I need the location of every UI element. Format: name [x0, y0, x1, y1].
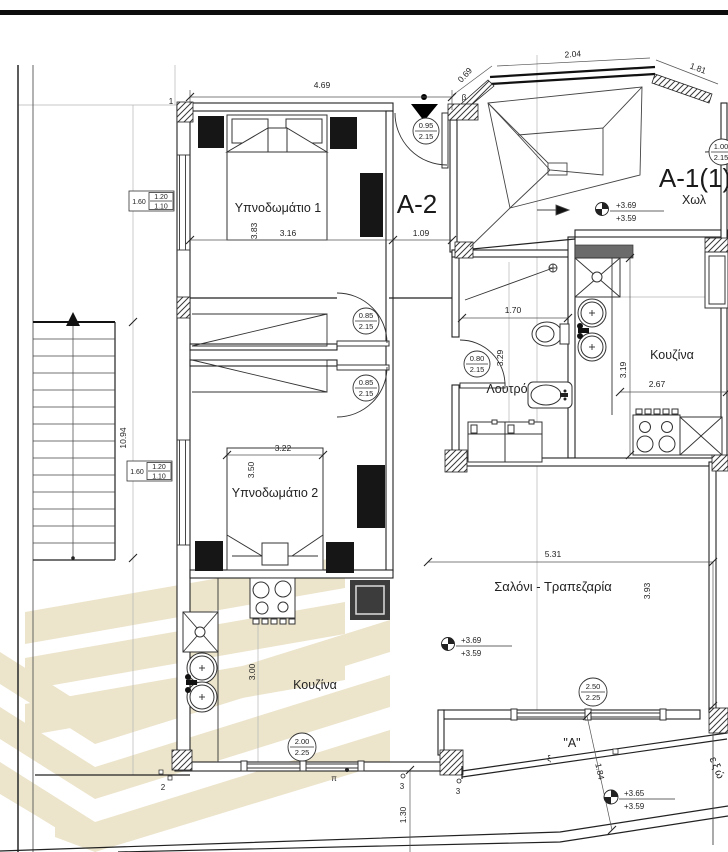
svg-text:0.95: 0.95 [419, 121, 434, 130]
dim-bath-h: 3.29 [495, 349, 505, 366]
top-border-bar [0, 10, 728, 15]
svg-text:+3.65: +3.65 [624, 789, 645, 798]
dim-top-width: 4.69 [314, 80, 331, 90]
window-boxes: 1.60 1.20 1.10 1.60 1.20 1.10 [127, 191, 174, 481]
tag-bath-door: 0.80 2.15 [464, 351, 490, 377]
floor-plan: 4.69 0.69 2.04 1.81 3.83 3.16 1.09 1.70 … [0, 0, 728, 852]
dim-bed1-h: 3.83 [249, 222, 259, 239]
svg-text:1.10: 1.10 [154, 204, 168, 211]
svg-text:1.60: 1.60 [132, 199, 146, 206]
svg-text:2.15: 2.15 [419, 132, 434, 141]
wardrobe [360, 173, 383, 237]
kitchen-a1-label: Κουζίνα [650, 348, 694, 362]
dim-kitchen1-h: 3.19 [618, 361, 628, 378]
tag-kitchen-window: 2.00 2.25 [288, 733, 316, 761]
direction-arrow-icon [556, 205, 569, 215]
wardrobe [357, 465, 385, 528]
stair-direction-arrow-icon [66, 312, 80, 326]
svg-text:+3.59: +3.59 [624, 802, 645, 811]
window-box-bed1: 1.60 1.20 1.10 [129, 191, 174, 211]
nightstand [195, 541, 223, 571]
bedroom1-label: Υπνοδωμάτιο 1 [235, 201, 321, 215]
floor-plan-drawing: 4.69 0.69 2.04 1.81 3.83 3.16 1.09 1.70 … [0, 0, 728, 852]
svg-text:+3.59: +3.59 [461, 649, 482, 658]
grid-1: 1 [169, 97, 174, 106]
dim-bottom-h: 1.30 [398, 806, 408, 823]
svg-text:0.80: 0.80 [470, 354, 485, 363]
svg-text:2.25: 2.25 [586, 693, 601, 702]
svg-text:1.00: 1.00 [714, 142, 728, 151]
svg-text:2.00: 2.00 [295, 737, 310, 746]
svg-text:1.20: 1.20 [152, 464, 166, 471]
living-label: Σαλόνι - Τραπεζαρία [494, 579, 612, 594]
stairwell-void [470, 87, 642, 247]
svg-text:+3.59: +3.59 [616, 214, 637, 223]
svg-text:+3.69: +3.69 [461, 636, 482, 645]
dim-bed2-w: 3.22 [275, 443, 292, 453]
level-marker-hall: +3.69 +3.59 [596, 201, 665, 223]
grid-3b: 3 [400, 782, 405, 791]
level-marker-living: +3.69 +3.59 [442, 636, 513, 658]
dim-kitchen2-h: 3.00 [247, 663, 257, 680]
balcony-edge-label: εξώ [707, 755, 727, 782]
tag-living-window: 2.50 2.25 [579, 678, 607, 706]
svg-text:2.15: 2.15 [714, 153, 728, 162]
dim-bed1-w: 3.16 [280, 228, 297, 238]
svg-text:2.15: 2.15 [359, 389, 374, 398]
svg-text:2.25: 2.25 [295, 748, 310, 757]
dim-living-w: 5.31 [545, 549, 562, 559]
svg-text:1.60: 1.60 [130, 469, 144, 476]
svg-text:1.20: 1.20 [154, 194, 168, 201]
svg-text:2.15: 2.15 [359, 322, 374, 331]
dim-balcony-d: 1.84 [593, 762, 606, 781]
dim-bed2-h: 3.50 [246, 461, 256, 478]
dim-stair-length: 10.94 [118, 427, 128, 449]
bedroom2-label: Υπνοδωμάτιο 2 [232, 486, 318, 500]
window-box-bed2: 1.60 1.20 1.10 [127, 461, 172, 481]
svg-text:2.15: 2.15 [470, 365, 485, 374]
hall-label: Χωλ [682, 193, 707, 207]
bathroom-label: Λουτρό [486, 382, 527, 396]
dim-entry-w: 1.09 [413, 228, 430, 238]
faucet-icon [186, 680, 197, 685]
svg-text:+3.69: +3.69 [616, 201, 637, 210]
svg-text:1.10: 1.10 [152, 474, 166, 481]
staircase [33, 312, 115, 560]
svg-text:2.50: 2.50 [586, 682, 601, 691]
unit-a2-label: A-2 [397, 189, 437, 219]
grid-2: 2 [161, 783, 166, 792]
closets [192, 314, 327, 392]
nightstand [198, 116, 224, 148]
nightstand [330, 117, 357, 149]
railing-mark: ξ [547, 754, 551, 763]
level-marker-balcony: +3.65 +3.59 [604, 789, 675, 811]
bedroom2-furniture [227, 448, 323, 570]
kitchen-a2-label: Κουζίνα [293, 678, 337, 692]
tag-bed2-door: 0.85 2.15 [353, 375, 379, 401]
bedroom1-furniture [227, 115, 327, 240]
tag-entry-a1: 1.00 2.15 [709, 139, 728, 165]
pi-mark: π [331, 774, 337, 783]
faucet-icon [578, 328, 589, 333]
nightstand [326, 542, 354, 573]
balcony-label: "A" [563, 736, 580, 750]
svg-text:0.85: 0.85 [359, 378, 374, 387]
tag-entry-a2: 0.95 2.15 [413, 118, 439, 144]
unit-a1-label: A-1(1) [659, 163, 728, 193]
grid-beta: β [462, 93, 467, 102]
dim-living-h: 3.93 [642, 582, 652, 599]
svg-text:0.85: 0.85 [359, 311, 374, 320]
dim-bath-w: 1.70 [505, 305, 522, 315]
tag-bed1-door: 0.85 2.15 [353, 308, 379, 334]
dim-kitchen1-w: 2.67 [649, 379, 666, 389]
dim-top-right1: 2.04 [564, 48, 581, 59]
grid-3: 3 [456, 787, 461, 796]
